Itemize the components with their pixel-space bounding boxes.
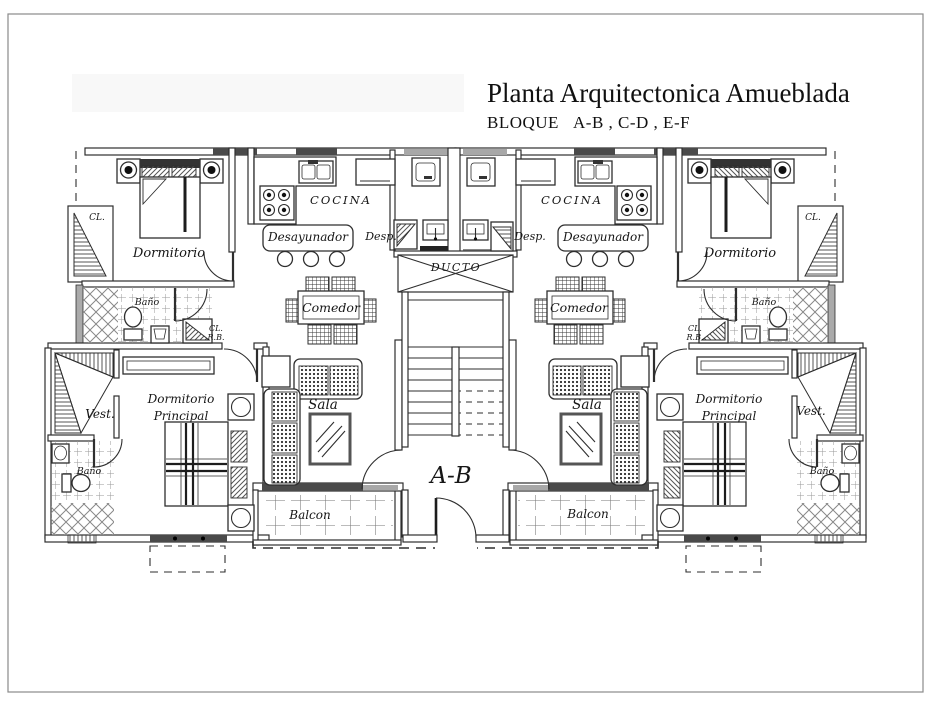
room-label-comedor-right: Comedor — [550, 300, 609, 315]
pantry-right — [491, 222, 513, 251]
room-label-dorm-principal-right-1: Dormitorio — [695, 392, 763, 406]
landing-bottom-wall — [476, 535, 509, 542]
room-label-desayunador-right: Desayunador — [562, 230, 644, 244]
room-label-closet-left: CL. — [89, 213, 105, 223]
landing-bottom-wall — [403, 535, 437, 542]
room-label-despensa-right: Desp. — [513, 230, 546, 243]
room-label-cl-rb-left-2: R.B. — [207, 333, 225, 342]
room-label-vestidor-left: Vest. — [85, 407, 114, 421]
subtitle-word: BLOQUE — [487, 113, 559, 132]
right-unit-geometry — [455, 148, 866, 572]
watermark-remnant — [72, 74, 464, 112]
top-window-center — [404, 149, 448, 155]
room-label-bano-top-left: Baño — [134, 297, 160, 308]
room-label-cl-rb-right-1: CL. — [688, 324, 702, 333]
floorplan-svg: Planta Arquitectonica Amueblada BLOQUE A… — [0, 0, 934, 712]
page-title: Planta Arquitectonica Amueblada — [487, 78, 850, 108]
room-label-dormitorio-left: Dormitorio — [132, 246, 205, 261]
stairwell — [402, 292, 509, 537]
room-label-cl-rb-left-1: CL. — [209, 324, 223, 333]
room-label-dormitorio-right: Dormitorio — [703, 246, 776, 261]
room-label-comedor-left: Comedor — [302, 300, 361, 315]
room-label-dorm-principal-left-1: Dormitorio — [147, 392, 215, 406]
left-unit-geometry — [45, 148, 456, 572]
laundry-tub-right — [463, 220, 492, 254]
room-label-bano-bottom-left: Baño — [76, 466, 102, 477]
room-label-cl-rb-right-2: R.B. — [686, 333, 704, 342]
room-label-vestidor-right: Vest. — [796, 404, 825, 418]
room-label-bano-bottom-right: Baño — [809, 466, 835, 477]
room-label-dorm-principal-left-2: Principal — [153, 409, 209, 423]
room-label-dorm-principal-right-2: Principal — [701, 409, 757, 423]
room-label-bano-top-right: Baño — [751, 297, 777, 308]
room-label-sala-left: Sala — [308, 397, 338, 413]
room-label-balcon-right: Balcon — [566, 507, 608, 521]
entrance-door — [436, 498, 476, 538]
room-label-despensa-left: Desp. — [364, 230, 397, 243]
pantry-left — [394, 220, 417, 249]
top-window-center — [463, 149, 507, 155]
room-label-desayunador-left: Desayunador — [267, 230, 349, 244]
floorplan-page: Planta Arquitectonica Amueblada BLOQUE A… — [0, 0, 934, 712]
subtitle-codes: A-B , C-D , E-F — [573, 113, 690, 132]
page-border — [8, 14, 923, 692]
room-label-cocina-right: COCINA — [541, 193, 603, 207]
washer-left — [412, 158, 440, 186]
stair-stringer — [452, 347, 459, 436]
party-wall — [448, 148, 460, 256]
room-label-balcon-left: Balcon — [288, 508, 330, 522]
duct-label: DUCTO — [430, 261, 481, 274]
room-label-cocina-left: COCINA — [310, 193, 372, 207]
washer-right — [467, 158, 495, 186]
room-label-sala-right: Sala — [572, 397, 602, 413]
laundry-tub-left — [420, 220, 448, 251]
landing-label: A-B — [428, 463, 471, 489]
room-label-closet-right: CL. — [805, 213, 821, 223]
